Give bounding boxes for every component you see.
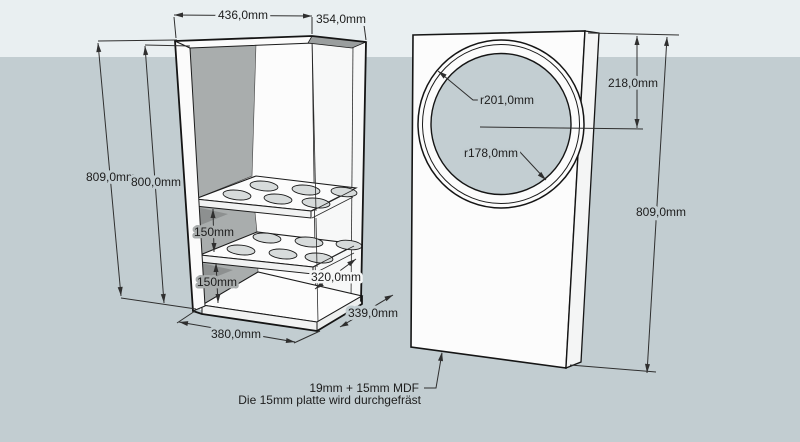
note-milling-label: Die 15mm platte wird durchgefräst (238, 393, 421, 407)
cutout-through-hole (431, 54, 571, 195)
dim-shelf-spacing-upper-label: 150mm (194, 225, 234, 239)
cabinet-left-wall-shadow (190, 44, 256, 199)
drawing-canvas-3d[interactable]: 436,0mm 354,0mm 809,0mm 800,0mm 150mm 15… (0, 0, 800, 442)
background (0, 0, 800, 442)
dim-left-inner-height-label: 800,0mm (131, 175, 181, 189)
sky (0, 0, 800, 57)
dim-top-depth-label: 354,0mm (316, 12, 366, 26)
front-baffle-panel (411, 31, 599, 368)
dim-front-height-label: 809,0mm (636, 205, 686, 219)
dim-bottom-width-label: 380,0mm (211, 327, 261, 341)
dim-left-outer-height-label: 809,0mm (86, 170, 136, 184)
dim-inner-radius-label: r178,0mm (464, 146, 518, 160)
dim-outer-radius-label: r201,0mm (480, 93, 534, 107)
dim-shelf-depth-label: 320,0mm (311, 270, 361, 284)
dim-shelf-spacing-lower-label: 150mm (197, 275, 237, 289)
dim-bottom-depth-label: 339,0mm (348, 306, 398, 320)
dim-top-width-label: 436,0mm (218, 8, 268, 22)
dim-circle-center-label: 218,0mm (608, 76, 658, 90)
sketchup-viewport: 436,0mm 354,0mm 809,0mm 800,0mm 150mm 15… (0, 0, 800, 442)
